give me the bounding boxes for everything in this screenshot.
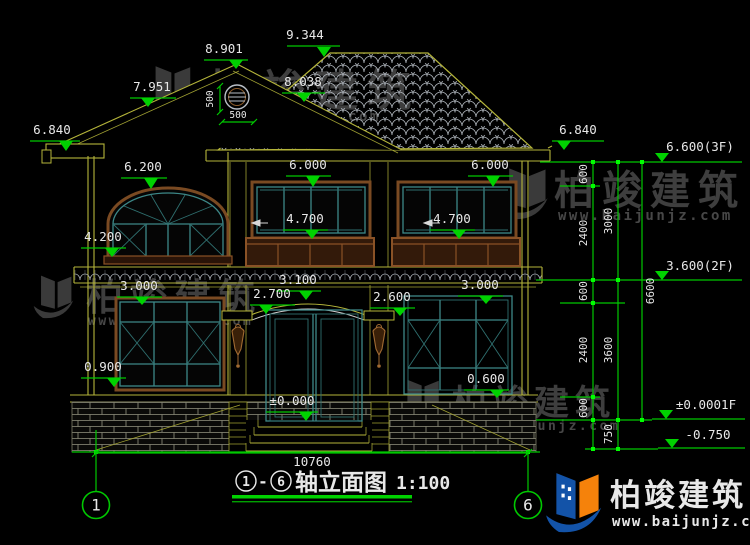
svg-text:7.951: 7.951 — [133, 79, 171, 94]
svg-text:8.901: 8.901 — [205, 41, 243, 56]
drawing-title: 1 - 6 轴立面图 1:100 — [232, 469, 450, 502]
svg-text:6.600(3F): 6.600(3F) — [666, 139, 734, 154]
svg-text:3.000: 3.000 — [461, 277, 499, 292]
svg-text:600: 600 — [577, 164, 590, 184]
svg-text:±0.0001F: ±0.0001F — [676, 397, 736, 412]
svg-text:0.600: 0.600 — [467, 371, 505, 386]
title-text: 轴立面图 — [295, 469, 387, 496]
wall-lamp-left — [232, 325, 244, 368]
balcony-railing-left — [246, 238, 374, 266]
title-axis-start: 1 — [242, 475, 250, 490]
entrance-steps — [246, 420, 372, 452]
svg-text:750: 750 — [602, 424, 615, 444]
total-width-label: 10760 — [293, 454, 331, 469]
svg-text:6.200: 6.200 — [124, 159, 162, 174]
brand-logo-icon — [546, 473, 601, 532]
brand-footer: 柏竣建筑 www.baijunjz.com — [546, 473, 750, 532]
svg-text:4.700: 4.700 — [286, 211, 324, 226]
svg-text:2.700: 2.700 — [253, 286, 291, 301]
svg-text:-0.750: -0.750 — [685, 427, 730, 442]
level-mark-arch-top: 6.200 — [121, 159, 167, 189]
svg-text:600: 600 — [577, 281, 590, 301]
svg-text:2.600: 2.600 — [373, 289, 411, 304]
svg-text:2400: 2400 — [577, 337, 590, 364]
svg-text:6.840: 6.840 — [559, 122, 597, 137]
elevation-drawing: 柏竣建筑 www.baijunjz.com 柏竣建筑 www.baijunjz.… — [0, 0, 750, 545]
svg-text:4.700: 4.700 — [433, 211, 471, 226]
cad-elevation-screenshot: 柏竣建筑 www.baijunjz.com 柏竣建筑 www.baijunjz.… — [0, 0, 750, 545]
brand-logo-icon — [34, 276, 74, 318]
svg-text:3000: 3000 — [602, 208, 615, 235]
svg-text:6.000: 6.000 — [289, 157, 327, 172]
watermark-right: 柏竣建筑 www.baijunjz.com — [500, 168, 746, 224]
svg-text:4.200: 4.200 — [84, 229, 122, 244]
svg-text:600: 600 — [577, 398, 590, 418]
svg-text:2400: 2400 — [577, 220, 590, 247]
level-mark-ground: -0.750 — [658, 427, 745, 448]
title-underline — [232, 495, 412, 499]
brand-name: 柏竣建筑 — [610, 478, 746, 514]
window-1f-left — [116, 298, 224, 390]
svg-text:3.100: 3.100 — [279, 272, 317, 287]
vent-width-dim: 500 — [229, 110, 246, 121]
title-scale: 1:100 — [396, 473, 450, 494]
svg-text:9.344: 9.344 — [286, 27, 324, 42]
title-axis-end: 6 — [277, 475, 285, 490]
svg-text:0.900: 0.900 — [84, 359, 122, 374]
level-mark-3f: 6.600(3F) — [650, 139, 742, 162]
arch-window — [104, 188, 232, 264]
vent-height-dim: 500 — [205, 90, 216, 107]
svg-text:8.038: 8.038 — [284, 74, 322, 89]
axis-left-label: 1 — [91, 496, 101, 515]
svg-text:3600: 3600 — [602, 337, 615, 364]
axis-right-label: 6 — [523, 496, 533, 515]
svg-text:±0.000: ±0.000 — [269, 393, 314, 408]
level-mark-gable-peak: 8.901 — [204, 41, 248, 69]
title-underline-thin — [232, 501, 412, 502]
level-mark-1f: ±0.0001F — [652, 397, 745, 419]
svg-text:3.600(2F): 3.600(2F) — [666, 258, 734, 273]
svg-text:6600: 6600 — [644, 278, 657, 305]
level-mark-eave-right: 6.840 — [552, 122, 604, 150]
brand-url: www.baijunjz.com — [612, 514, 750, 530]
chain-c-labels: 6600 — [644, 278, 657, 305]
title-separator: - — [258, 472, 268, 491]
gable-vent — [225, 85, 249, 109]
level-mark-2f: 3.600(2F) — [650, 258, 742, 280]
balcony-railing-right — [392, 238, 520, 266]
wall-lamp-right — [373, 325, 385, 368]
svg-text:6.000: 6.000 — [471, 157, 509, 172]
svg-text:6.840: 6.840 — [33, 122, 71, 137]
svg-text:3.000: 3.000 — [120, 278, 158, 293]
